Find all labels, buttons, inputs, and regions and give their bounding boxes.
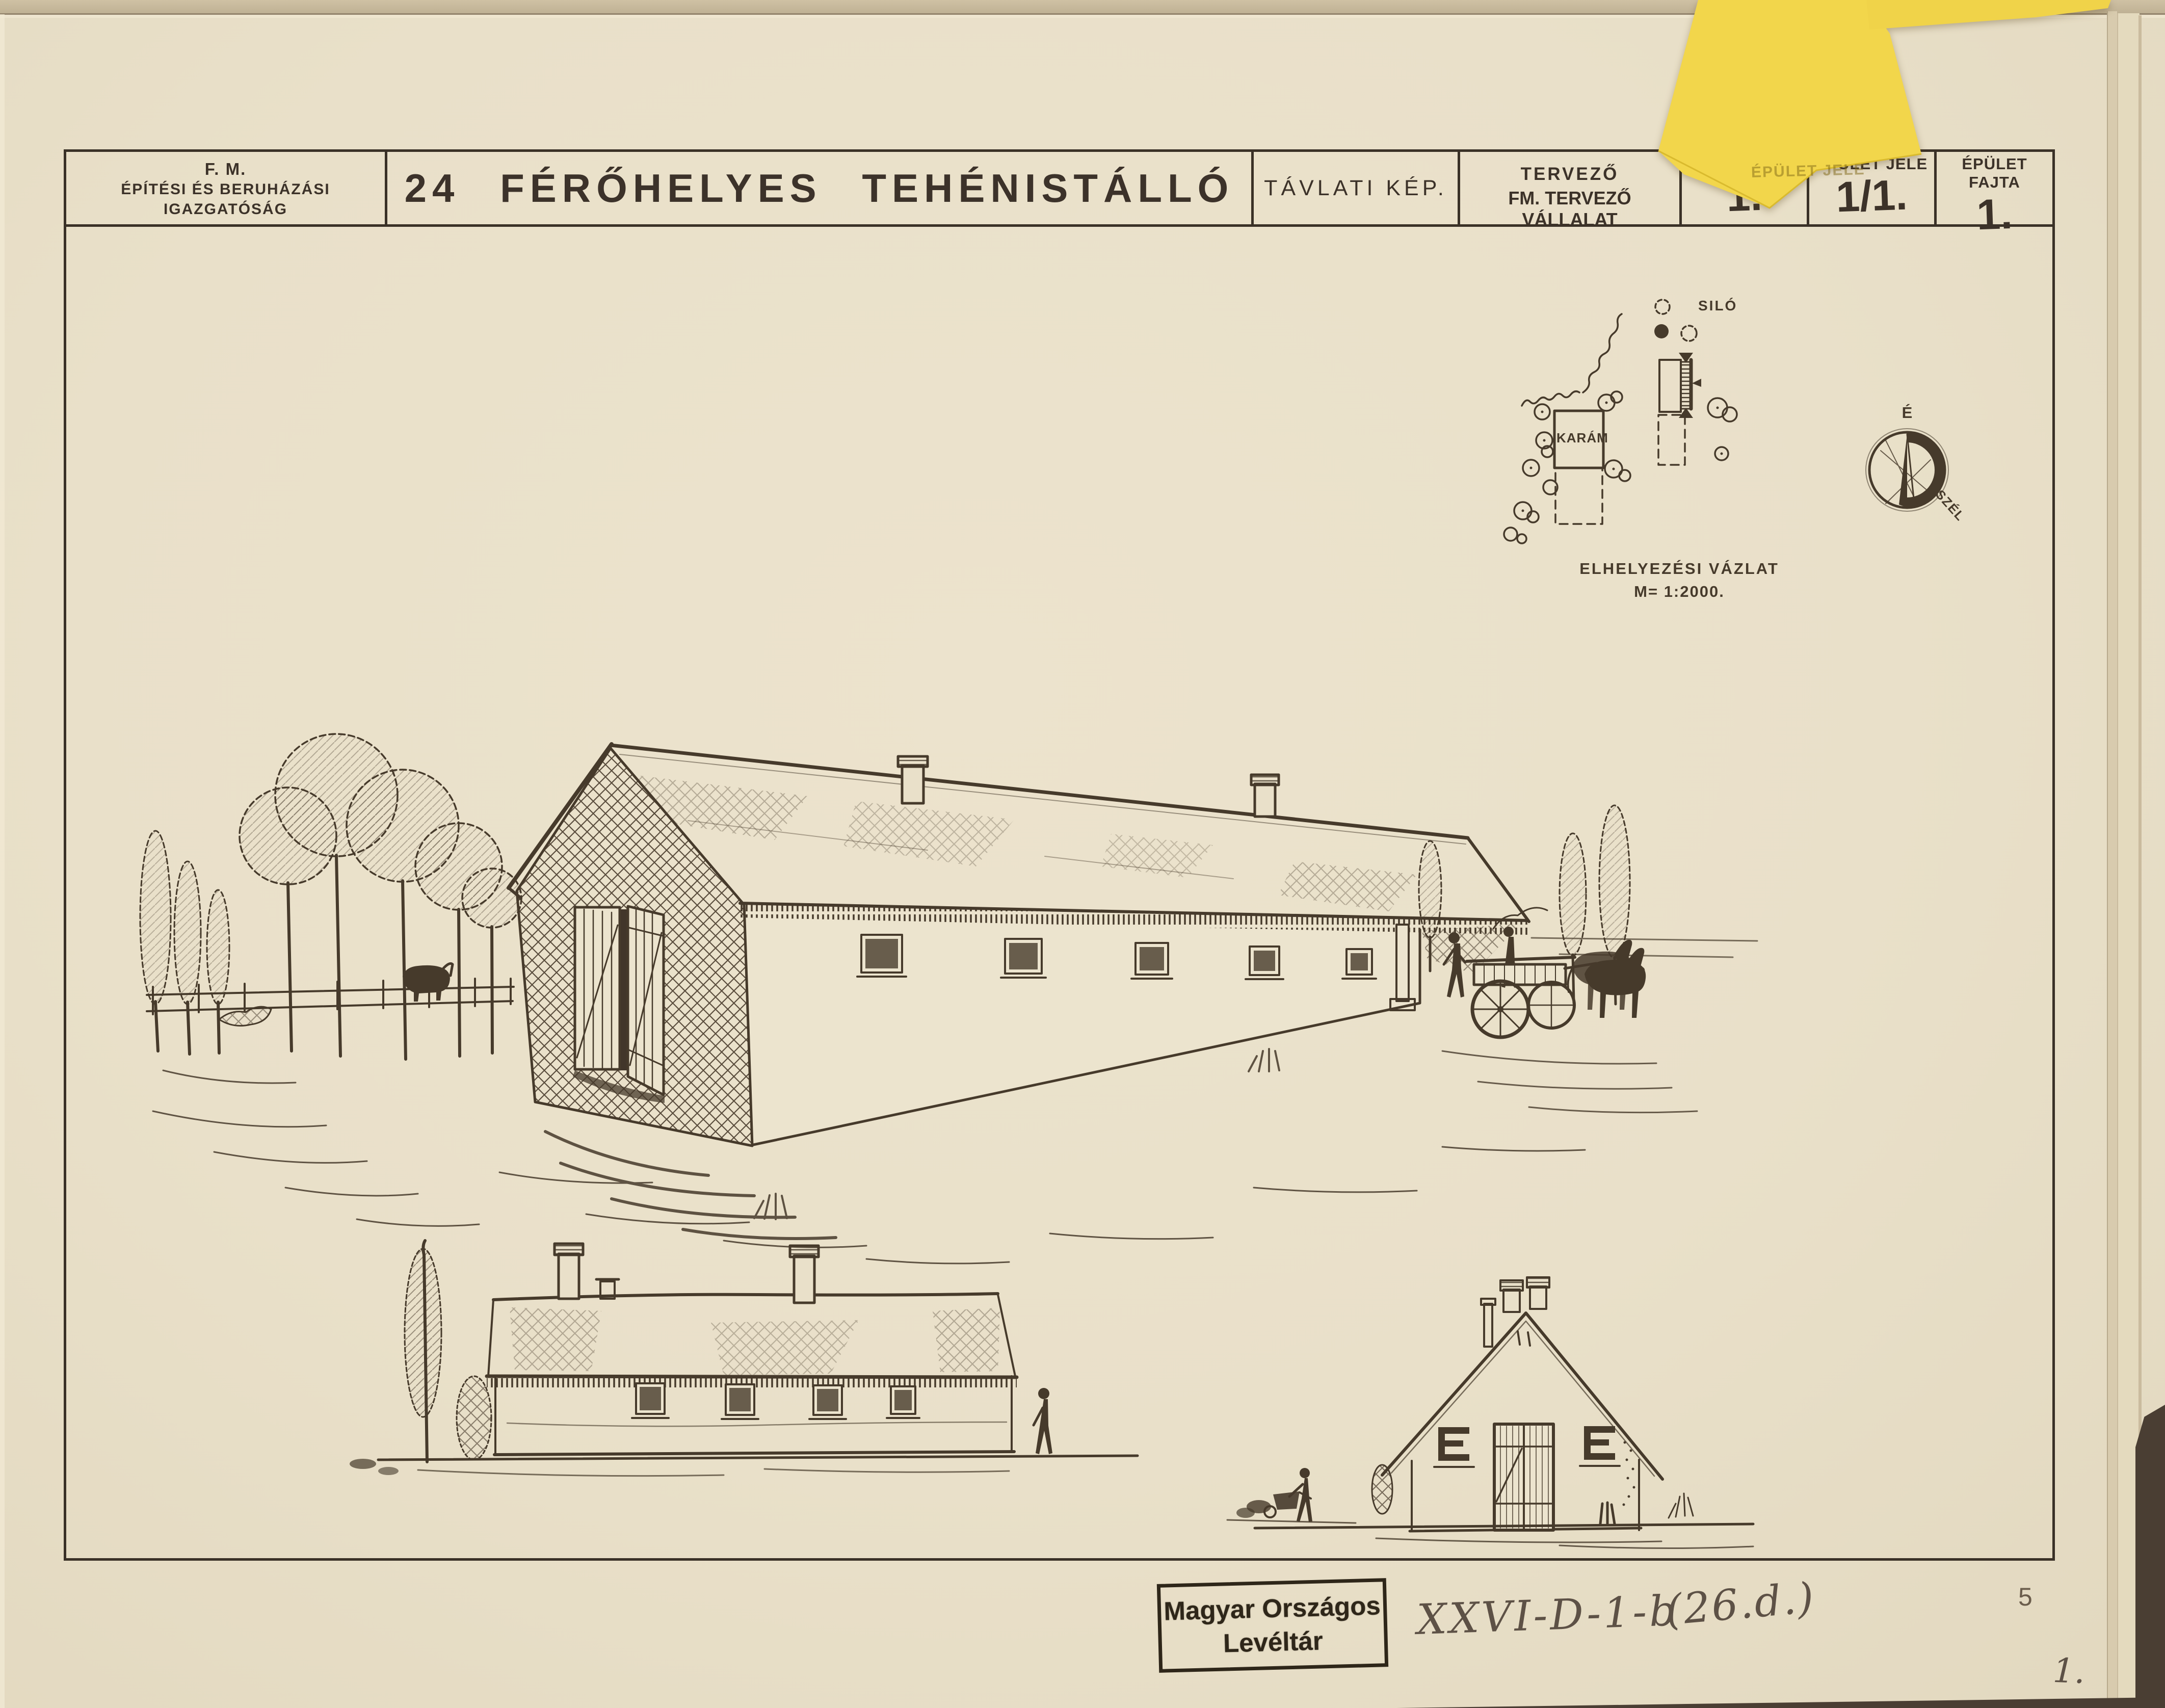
sticky-note bbox=[0, 0, 2165, 1708]
archival-scan-page: F. M. ÉPÍTÉSI ÉS BERUHÁZÁSI IGAZGATÓSÁG … bbox=[0, 0, 2165, 1708]
sticky-note-tab bbox=[1866, 0, 2111, 30]
